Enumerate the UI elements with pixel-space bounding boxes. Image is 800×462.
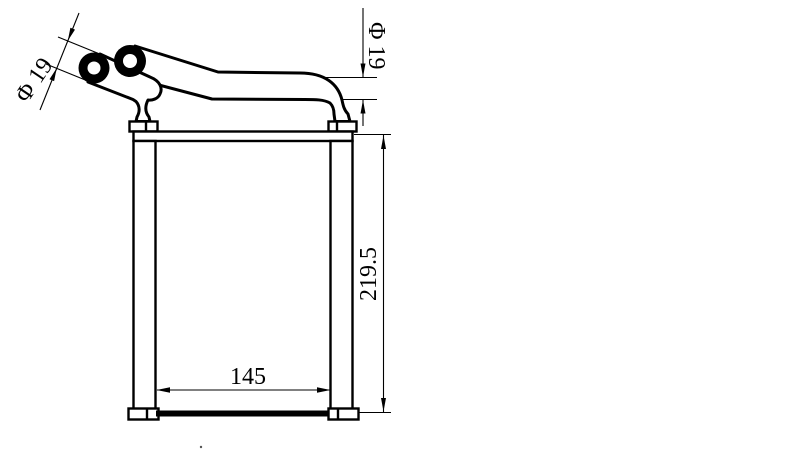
pipe-opening-right — [114, 45, 146, 77]
left-foot — [129, 409, 159, 420]
pipe-bore — [88, 62, 101, 75]
bottom-header — [156, 411, 329, 417]
right-tank — [331, 141, 353, 409]
arrowhead — [361, 100, 366, 114]
extension-line — [58, 37, 101, 55]
arrowhead — [317, 387, 331, 392]
top-header — [134, 132, 353, 142]
pipes — [79, 45, 351, 122]
speck — [200, 446, 202, 448]
arrowhead — [381, 398, 386, 412]
right-foot — [329, 409, 359, 420]
left-connector — [130, 122, 158, 132]
arrowhead — [68, 28, 75, 41]
pipe-bore — [123, 54, 137, 68]
dim-core-height: 219.5 — [354, 135, 391, 413]
pipe-opening-left — [79, 53, 110, 84]
dim-label-core-height: 219.5 — [356, 247, 382, 301]
dim-core-width: 145 — [157, 364, 331, 393]
technical-drawing-canvas: Φ 19 Φ 19 219.5 145 — [0, 0, 800, 462]
dim-pipe-diameter-right: Φ 19 — [315, 8, 389, 126]
arrowhead — [381, 136, 386, 150]
left-tank — [134, 141, 156, 409]
technical-drawing-page: Φ 19 Φ 19 219.5 145 — [0, 0, 800, 462]
dim-label-pipe-diameter-right: Φ 19 — [363, 22, 389, 70]
dim-label-core-width: 145 — [230, 364, 266, 390]
right-connector — [329, 122, 357, 132]
arrowhead — [157, 387, 171, 392]
